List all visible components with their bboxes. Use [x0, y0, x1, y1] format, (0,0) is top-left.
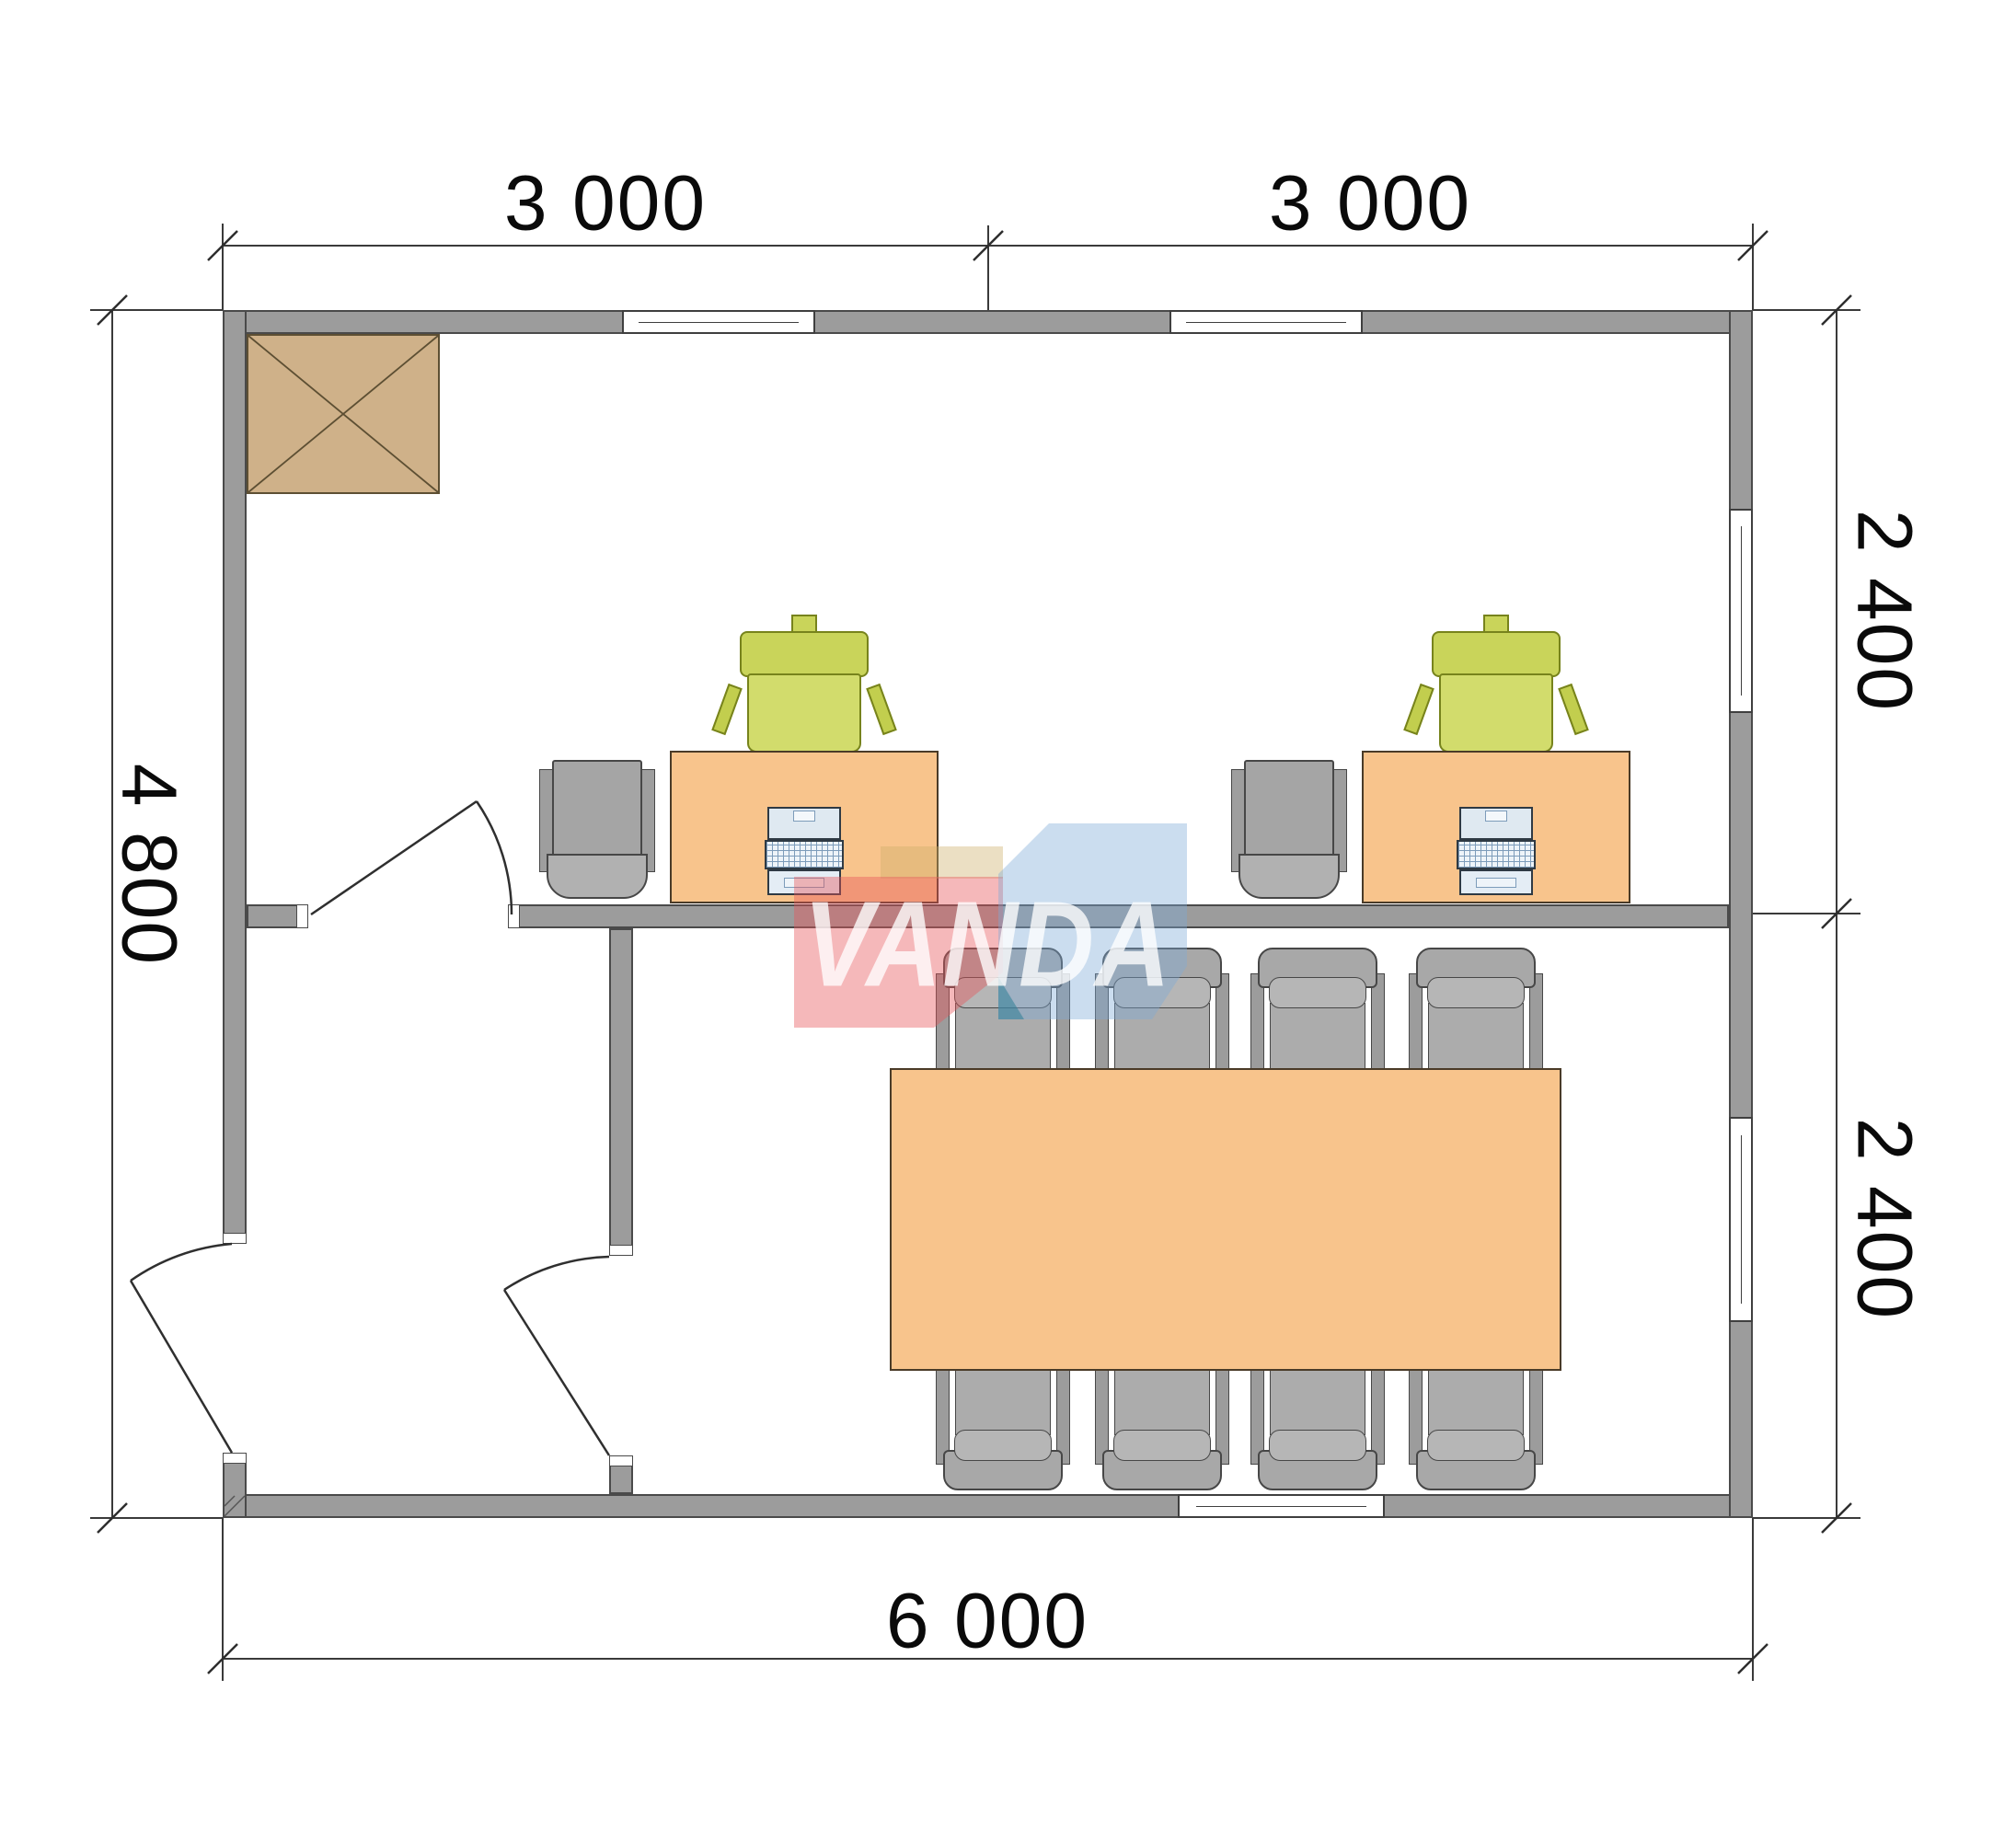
floor-plan-canvas: 3 000 3 000 2 400 2 400 4 800 6 000 VAND… [0, 0, 2016, 1840]
watermark-text: VANDA [803, 874, 1171, 1013]
